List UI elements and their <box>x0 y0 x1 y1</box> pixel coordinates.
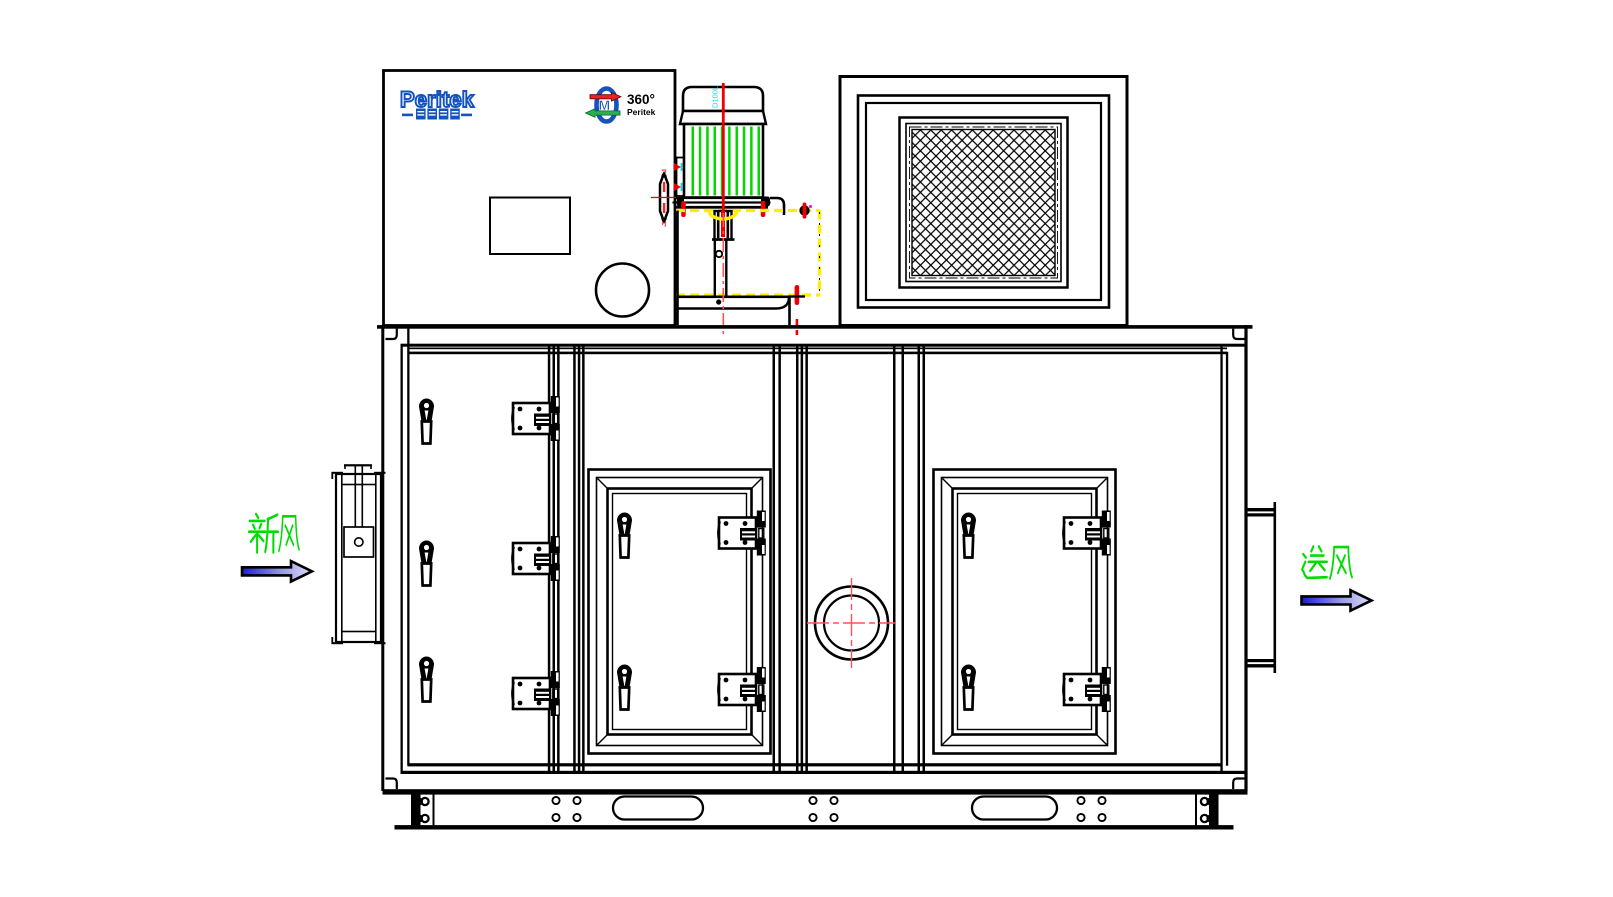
svg-text:360°: 360° <box>627 92 655 107</box>
svg-text:Peritek: Peritek <box>400 87 475 112</box>
svg-text:D100L: D100L <box>711 86 720 108</box>
svg-text:Peritek: Peritek <box>627 107 656 117</box>
